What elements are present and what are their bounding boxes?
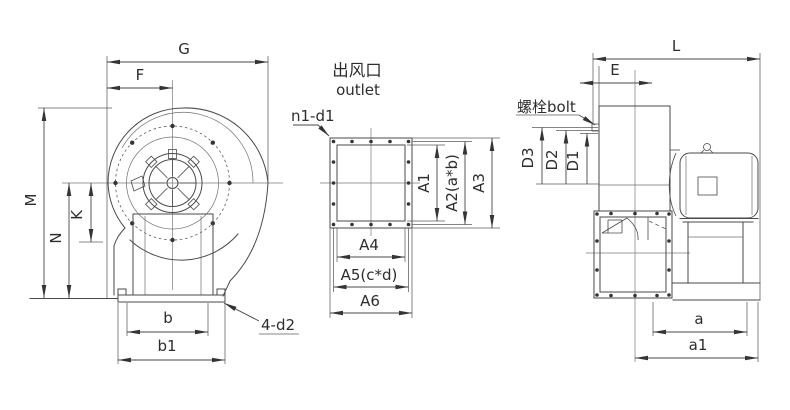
dim-label-b: b <box>163 309 173 327</box>
leader-line-bolt <box>579 115 595 125</box>
scroll-outline-bottom <box>130 234 238 260</box>
dim-label-D2: D2 <box>543 149 561 170</box>
outlet-duct <box>592 106 670 211</box>
motor-eyebolt <box>701 144 713 154</box>
dim-label-N: N <box>47 232 65 243</box>
dim-label-a1: a1 <box>689 336 708 354</box>
base-plate <box>118 289 225 302</box>
fan-technical-drawing: G F M N K b b1 4-d2 出风口 outlet <box>0 0 790 410</box>
dim-label-A6: A6 <box>360 292 380 310</box>
dim-label-A3: A3 <box>470 173 488 193</box>
dim-label-M: M <box>22 194 40 207</box>
scroll-outline-left <box>108 108 183 295</box>
dim-label-E: E <box>610 61 619 79</box>
housing-box <box>594 211 672 298</box>
support-column <box>133 214 213 295</box>
dim-label-K: K <box>68 209 86 220</box>
left-view-scroll: G F M N K b b1 4-d2 <box>22 40 299 364</box>
motor <box>669 144 758 219</box>
drawing-canvas: G F M N K b b1 4-d2 出风口 outlet <box>0 0 790 410</box>
leader-label-4-d2: 4-d2 <box>261 316 295 334</box>
outlet-title-en: outlet <box>336 81 380 99</box>
motor-base <box>673 219 760 301</box>
motor-face-plate <box>698 177 717 195</box>
dim-label-A2: A2(a*b) <box>443 154 461 212</box>
dim-label-F: F <box>136 66 145 84</box>
dim-label-D3: D3 <box>519 147 537 168</box>
leader-label-bolt: 螺栓bolt <box>517 98 576 116</box>
outlet-title-cn: 出风口 <box>332 61 382 80</box>
leader-line-n1-d1 <box>293 125 329 136</box>
dim-label-b1: b1 <box>157 337 176 355</box>
housing-internal-lines <box>602 217 666 240</box>
dim-label-L: L <box>672 37 681 55</box>
dim-label-D1: D1 <box>564 150 582 171</box>
dim-label-a: a <box>694 310 703 328</box>
dim-label-A1: A1 <box>415 173 433 193</box>
outlet-view: 出风口 outlet n1-d1 A1 A2(a*b) A3 <box>291 61 500 318</box>
dim-label-A5: A5(c*d) <box>341 266 398 284</box>
scroll-spiral <box>183 108 268 296</box>
leader-label-n1-d1: n1-d1 <box>291 107 335 125</box>
leader-line-4-d2 <box>224 303 259 321</box>
right-view: L E 螺栓bolt D3 D2 D1 a a1 <box>516 37 760 362</box>
dim-label-A4: A4 <box>359 236 379 254</box>
dim-label-G: G <box>178 40 190 58</box>
